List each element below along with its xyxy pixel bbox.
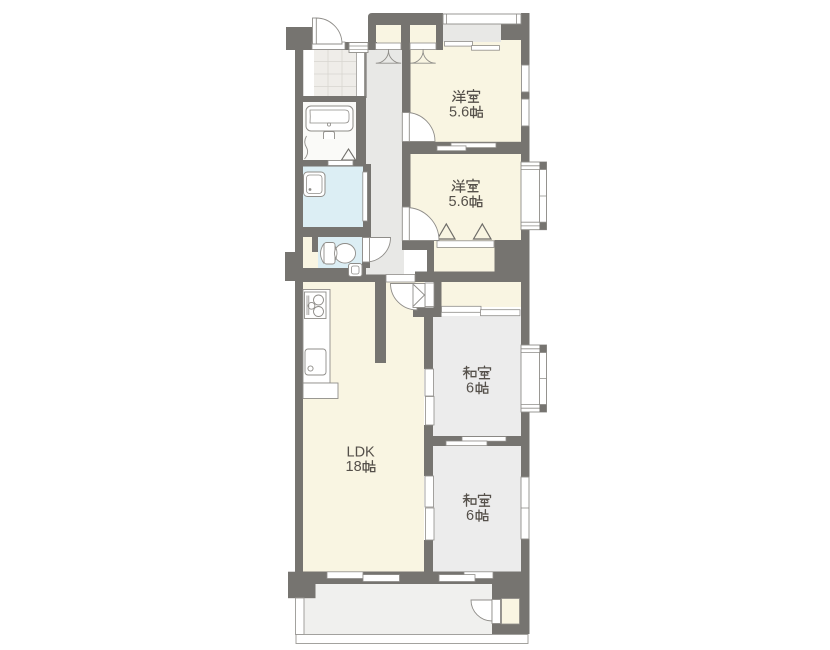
svg-text:18: 18 <box>346 459 362 475</box>
svg-text:6: 6 <box>466 508 474 524</box>
svg-text:5.6: 5.6 <box>449 105 469 121</box>
svg-text:6: 6 <box>466 381 474 397</box>
svg-text:5.6: 5.6 <box>449 194 469 210</box>
